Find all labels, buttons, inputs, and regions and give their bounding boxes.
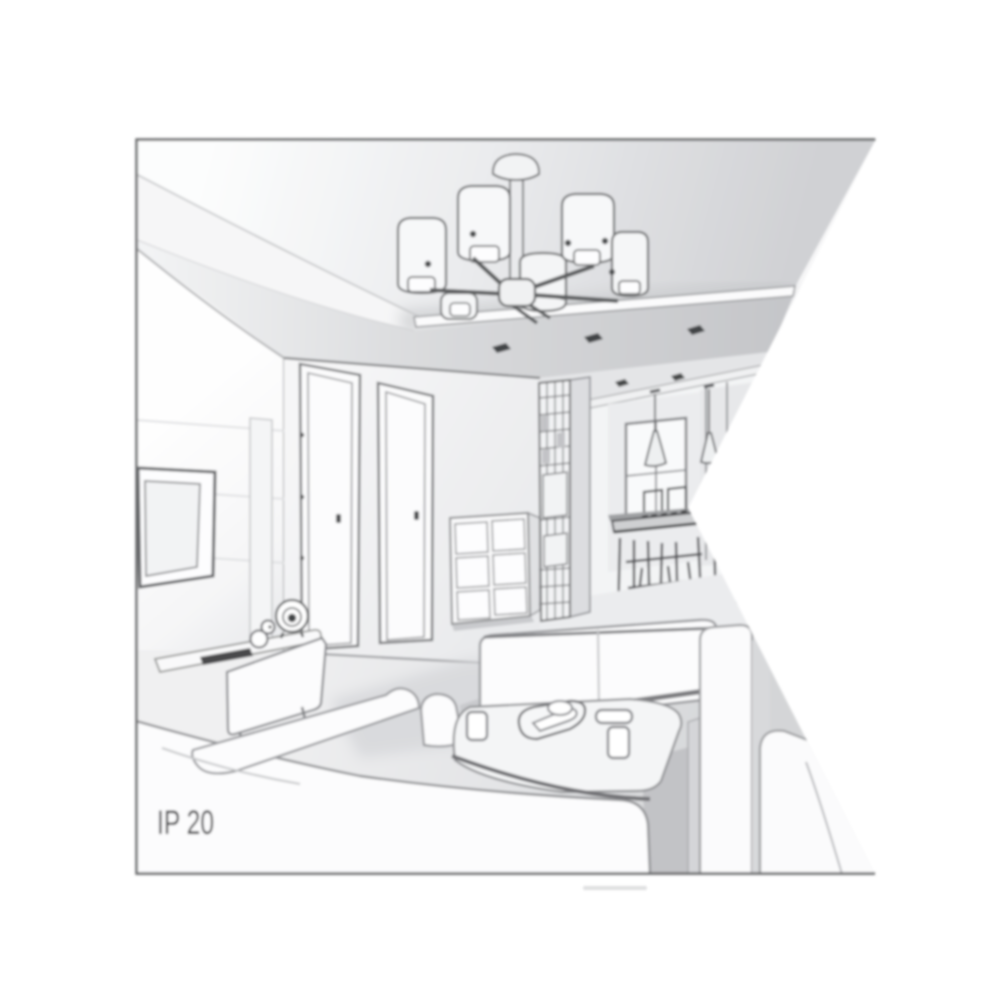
svg-text:IP 20: IP 20 [157, 804, 214, 842]
